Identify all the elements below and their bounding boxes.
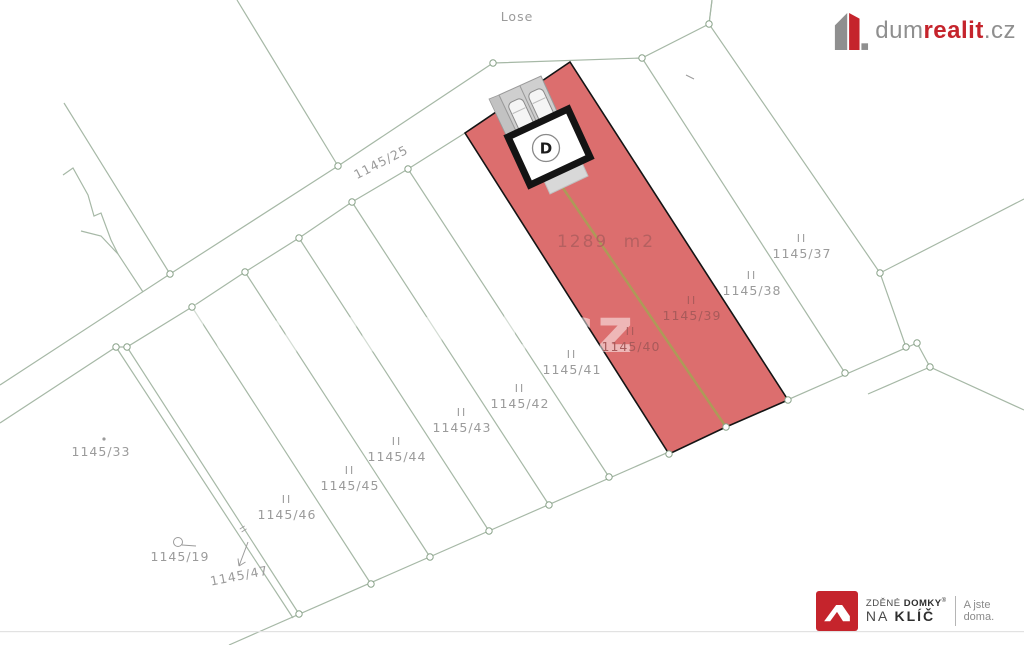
parcel-label: II [797, 232, 808, 245]
boundary-vertex [914, 340, 920, 346]
watermark-text: dumrealit.cz [164, 294, 636, 367]
parcel-label: Lose [501, 9, 534, 24]
map-bottom-edge [0, 631, 1024, 632]
plot-area-label: 1289 m2 [557, 232, 655, 252]
boundary-vertex [606, 474, 612, 480]
boundary-vertex [927, 364, 933, 370]
boundary-vertex [167, 271, 173, 277]
parcel-label: II [392, 435, 403, 448]
boundary-vertex [486, 528, 492, 534]
point-symbol [102, 437, 105, 440]
boundary-vertex [296, 235, 302, 241]
house-marker-letter: D [540, 140, 552, 158]
parcel-arrow [238, 542, 248, 566]
parcel-label: 1145/39 [663, 308, 722, 323]
boundary-vertex [335, 163, 341, 169]
parcel-label: II [687, 294, 698, 307]
parcel-label: II [457, 406, 468, 419]
registered-mark: ® [942, 598, 947, 604]
boundary-vertex [666, 451, 672, 457]
parcel-label: 1145/40 [602, 339, 661, 354]
parcel-label: 1145/47 [209, 563, 270, 589]
parcel-label: 1145/42 [491, 396, 550, 411]
builder-logo: ZDĚNÉ DOMKY® NA KLÍČ A jste doma. [816, 591, 1024, 631]
survey-symbol-tail [182, 545, 196, 546]
boundary-vertex [368, 581, 374, 587]
boundary-vertex [490, 60, 496, 66]
survey-symbol [174, 538, 183, 547]
dumrealit-logo: dumrealit.cz [833, 10, 1016, 52]
builder-zdene: ZDĚNÉ [866, 598, 901, 609]
house-marker: D [533, 135, 560, 162]
boundary-vertex [113, 344, 119, 350]
parcel-label: 1145/45 [321, 478, 380, 493]
builder-na: NA [866, 608, 889, 624]
cadastral-map: dumrealit.cz [0, 0, 1024, 645]
boundary-vertex [723, 424, 729, 430]
builder-logo-box [816, 591, 858, 631]
boundary-vertex [349, 199, 355, 205]
parcel-label: 1145/43 [433, 420, 492, 435]
parcel-label: II [567, 348, 578, 361]
boundary-vertex [546, 502, 552, 508]
cadastral-map-page: dumrealit.cz [0, 0, 1024, 645]
boundary-vertex [427, 554, 433, 560]
builder-logo-text: ZDĚNÉ DOMKY® NA KLÍČ [866, 598, 947, 625]
logo-text-cz: .cz [984, 17, 1016, 44]
builder-tagline: A jste doma. [964, 599, 1024, 623]
parcel-label: 1145/46 [258, 507, 317, 522]
parcel-label: 1145/33 [72, 444, 131, 459]
boundary-vertex [903, 344, 909, 350]
parcel-label: 1145/41 [543, 362, 602, 377]
boundary-vertex [296, 611, 302, 617]
boundary-vertex [405, 166, 411, 172]
tick-mark [686, 75, 694, 79]
boundary-vertex [189, 304, 195, 310]
parcel-label: 1145/25 [351, 142, 410, 182]
parcel-label: 1145/44 [368, 449, 427, 464]
builder-domky: DOMKY [904, 598, 942, 609]
logo-text-realit: realit [923, 17, 983, 44]
builder-klic: KLÍČ [895, 608, 936, 624]
logo-text-dum: dum [875, 17, 923, 44]
dumrealit-logo-text: dumrealit.cz [875, 17, 1016, 45]
highlighted-plot: dumrealit.cz [164, 62, 788, 454]
builder-divider [955, 596, 956, 626]
parcel-label: 1145/19 [151, 549, 210, 564]
parcel-label: II [626, 325, 637, 338]
parcel-label: II [747, 269, 758, 282]
builder-line2: NA KLÍČ [866, 609, 947, 624]
boundary-vertex [124, 344, 130, 350]
dumrealit-logo-icon [833, 10, 869, 52]
boundary-vertex [877, 270, 883, 276]
boundary-vertex [706, 21, 712, 27]
parcel-label: II [515, 382, 526, 395]
boundary-vertex [842, 370, 848, 376]
boundary-vertex [242, 269, 248, 275]
parcel-label: II [282, 493, 293, 506]
boundary-vertex [785, 397, 791, 403]
parcel-label: 1145/38 [723, 283, 782, 298]
roof-icon [819, 595, 855, 627]
parcel-label: 1145/37 [773, 246, 832, 261]
parcel-label: II [345, 464, 356, 477]
boundary-vertex [639, 55, 645, 61]
